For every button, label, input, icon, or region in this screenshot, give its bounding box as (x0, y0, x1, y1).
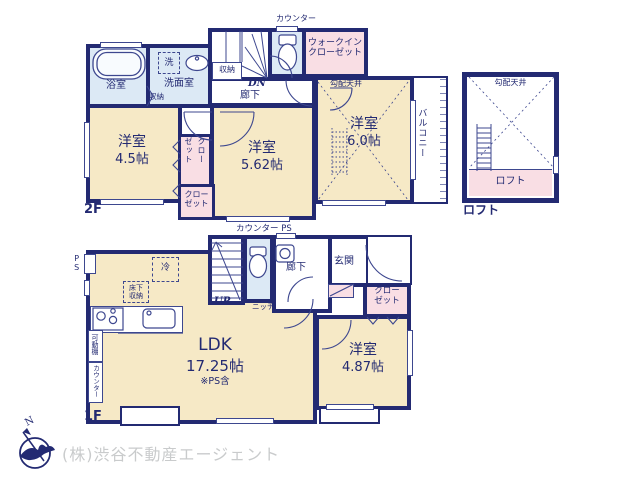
ldk-size: 17.25帖 (140, 358, 290, 375)
underfloor-line1: 床下 (123, 284, 149, 292)
label-washroom-storage: 収納 (149, 93, 164, 102)
room-size: 5.62帖 (210, 159, 314, 174)
room-name: 洋室 (315, 342, 411, 358)
underfloor-line2: 収納 (123, 292, 149, 300)
label-closet-1f: クロー ゼット (363, 287, 411, 307)
label-walk-in-closet: ウォークイン クローゼット (302, 38, 368, 59)
label-washer: 洗 (158, 58, 180, 68)
kitchen-counter (90, 306, 183, 333)
closet-line2: ゼット (178, 199, 215, 208)
label-bath: 浴室 (86, 80, 146, 92)
label-counter-2f: カウンター (276, 14, 316, 23)
window-mark (326, 404, 374, 410)
window-mark (322, 200, 386, 206)
bathroom (86, 44, 150, 108)
closet-col2: ゼット (183, 137, 194, 187)
label-floor-1f: 1F (84, 410, 102, 425)
window-mark (553, 156, 559, 174)
label-dn: DN (248, 78, 266, 90)
room-size: 4.87帖 (315, 361, 411, 376)
hallway-1f (272, 235, 332, 313)
balcony-railing (440, 79, 446, 201)
label-movable-shelf: 可動棚 (91, 334, 99, 355)
label-floor-2f: 2F (84, 203, 102, 218)
compass-logo: N (20, 415, 55, 468)
ldk-bay-step (120, 406, 180, 426)
closet-line1: クロー (178, 190, 215, 199)
label-room-4-87: 洋室 4.87帖 (315, 342, 411, 376)
wic-line2: クローゼット (302, 48, 368, 58)
entrance-step (328, 284, 354, 298)
room-size: 4.5帖 (86, 153, 178, 168)
window-mark (84, 280, 90, 296)
window-mark (226, 216, 290, 222)
wic-line1: ウォークイン (302, 38, 368, 48)
label-room-4-5: 洋室 4.5帖 (86, 134, 178, 168)
ldk-note: ※PS含 (140, 377, 290, 388)
label-room-5-62: 洋室 5.62帖 (210, 140, 314, 174)
closet-col1: クロー (196, 137, 207, 187)
label-sloped-ceiling-2f: 勾配天井 (330, 79, 362, 88)
label-underfloor-storage: 床下 収納 (123, 284, 149, 300)
label-loft-area: ロフト (469, 176, 552, 188)
label-niche: ニッチ (252, 303, 275, 312)
closet-line2: ゼット (363, 297, 411, 307)
label-loft-sloped-ceiling: 勾配天井 (462, 78, 559, 87)
label-hallway-1f: 廊下 (286, 262, 306, 274)
ldk-name: LDK (140, 336, 290, 356)
toilet-1f (243, 235, 274, 303)
label-ldk: LDK 17.25帖 ※PS含 (140, 336, 290, 388)
toilet-2f (268, 28, 306, 78)
window-mark (276, 26, 298, 32)
label-stair-storage: 収納 (212, 65, 242, 74)
floor-plan: N カウンター 浴室 洗 洗面室 収納 収納 DN 廊下 ウォークイン クローゼ… (0, 0, 640, 480)
window-mark (100, 42, 142, 48)
label-hallway-2f: 廊下 (240, 90, 260, 102)
label-washroom: 洗面室 (146, 78, 212, 90)
window-mark (100, 199, 164, 205)
label-up: UP (214, 296, 230, 308)
compass-north-label: N (23, 415, 36, 429)
entrance-porch (366, 235, 412, 285)
label-counter-ps: カウンター PS (236, 225, 292, 235)
room-name: 洋室 (86, 134, 178, 150)
room-name: 洋室 (210, 140, 314, 156)
label-counter-vertical: カウンター (91, 365, 98, 398)
company-credit: (株)渋谷不動産エージェント (62, 446, 280, 464)
stairs-1f (208, 235, 245, 305)
label-room-6-0: 洋室 6.0帖 (316, 116, 412, 150)
label-balcony: バルコニー (416, 108, 426, 158)
label-closet-2f-a: クロー ゼット (181, 137, 209, 187)
room-size: 6.0帖 (316, 135, 412, 150)
room-name: 洋室 (316, 116, 412, 132)
label-fridge: 冷 (152, 263, 179, 273)
label-ps: PS (72, 254, 81, 272)
window-mark (216, 418, 274, 424)
label-loft-caption: ロフト (463, 204, 499, 218)
label-entrance: 玄関 (334, 256, 354, 268)
label-closet-2f-b: クロー ゼット (178, 190, 215, 208)
ps-shaft (84, 254, 96, 274)
